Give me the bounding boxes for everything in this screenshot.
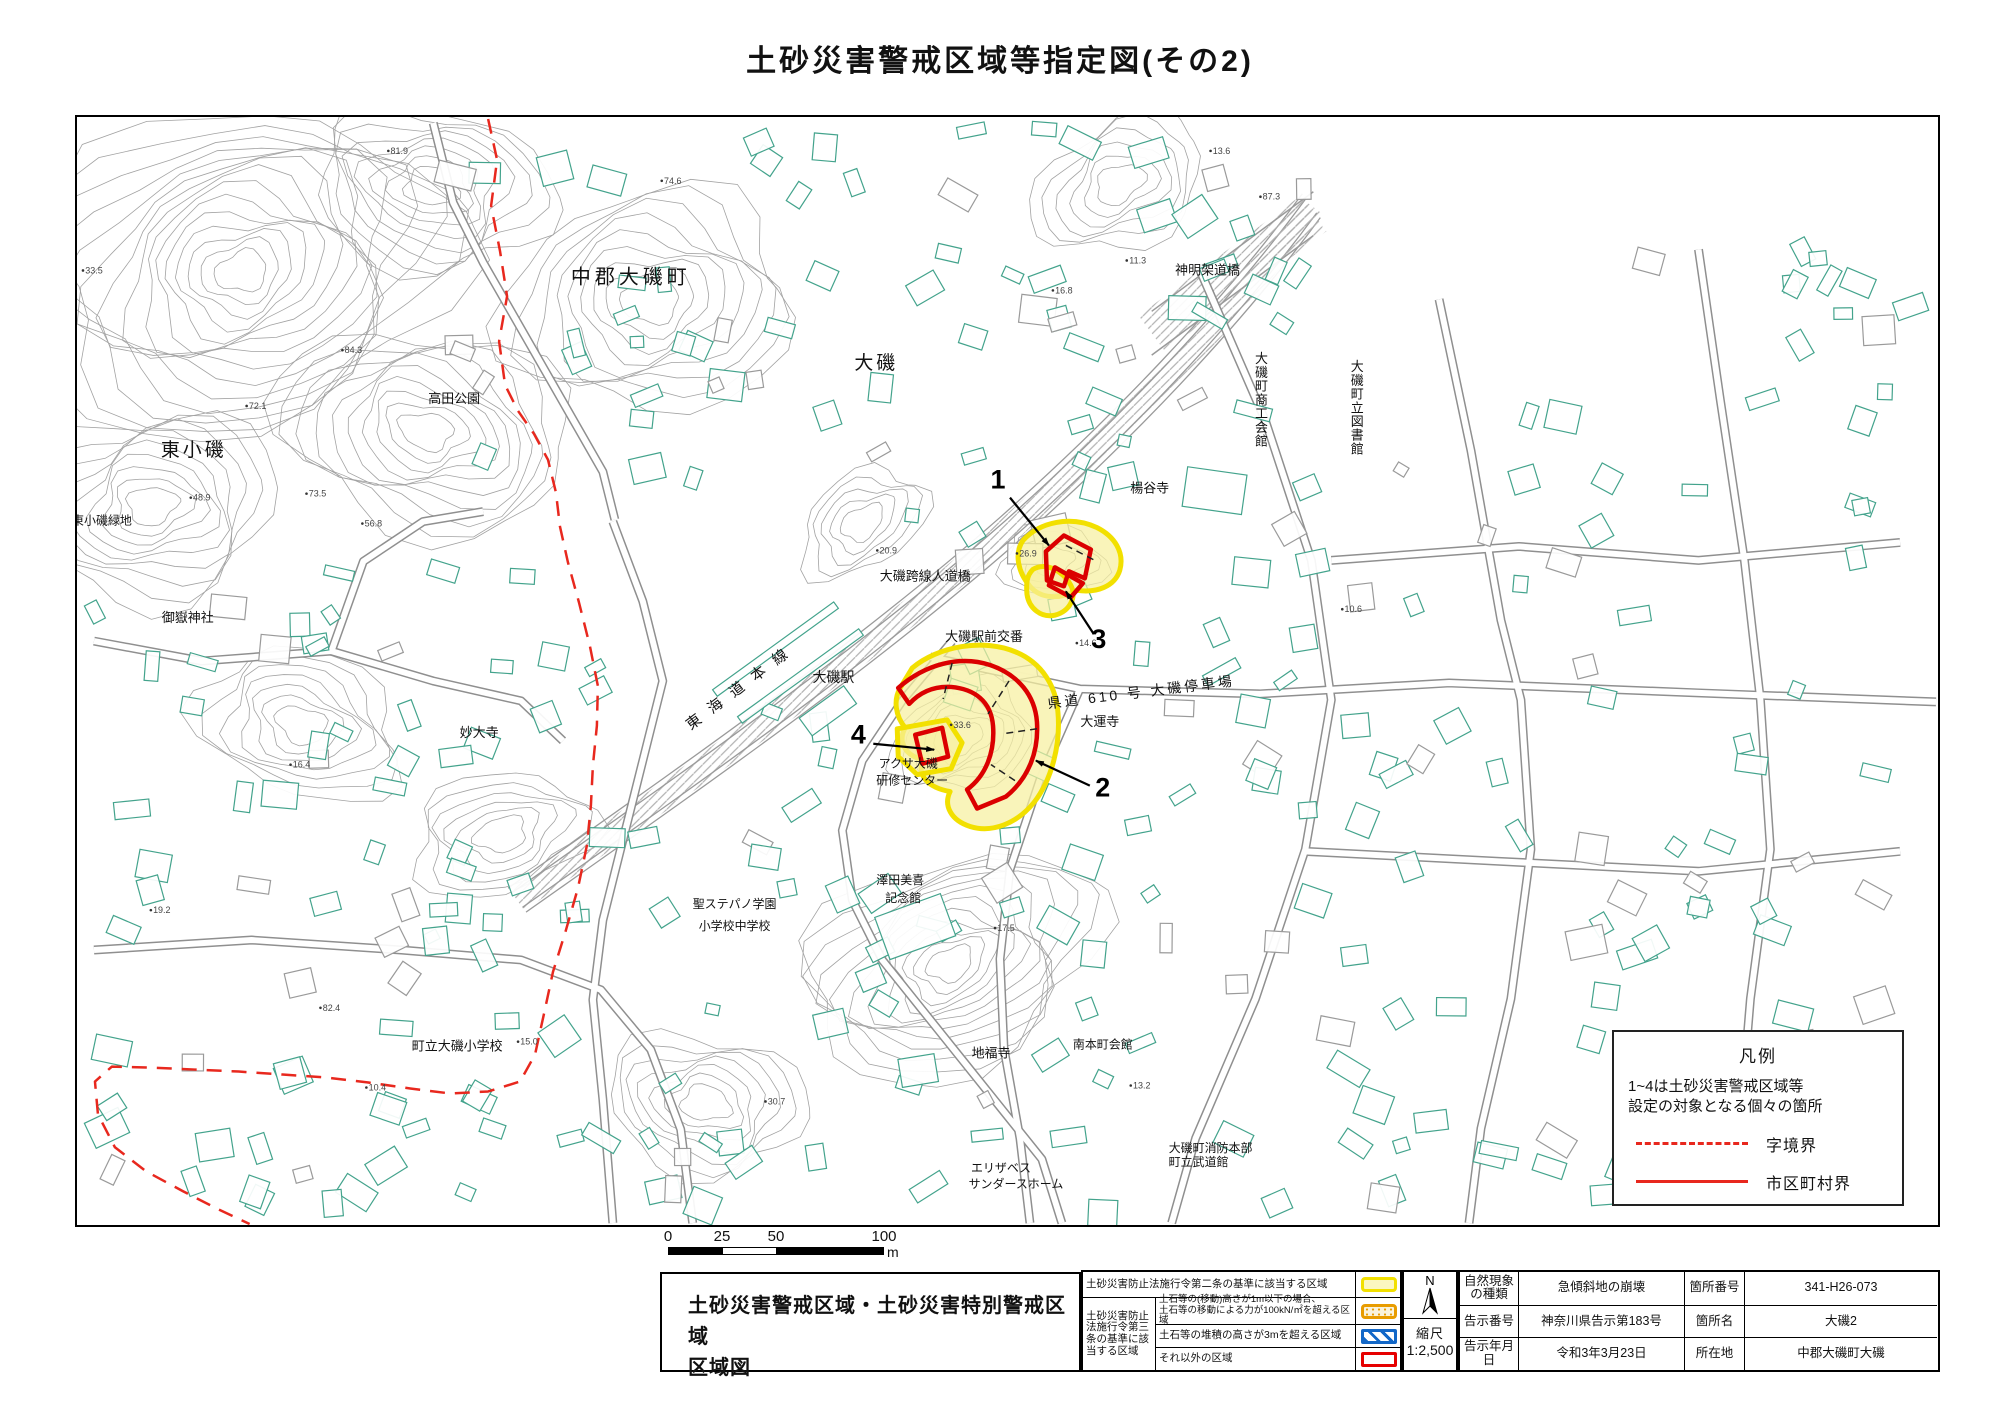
page-title: 土砂災害警戒区域等指定図(その2): [0, 36, 2000, 80]
map-place-label: 大磯駅: [812, 669, 854, 685]
zone-number: 2: [1095, 773, 1110, 803]
map-place-label: 東小磯緑地: [77, 513, 132, 528]
svg-text:16.8: 16.8: [1055, 285, 1072, 295]
map-place-label: 澤田美喜: [876, 873, 924, 887]
svg-text:33.5: 33.5: [85, 265, 102, 275]
map-place-label: 妙大寺: [460, 725, 499, 740]
svg-text:87.3: 87.3: [1263, 192, 1280, 202]
scale-bar: 0 25 50 100 m: [665, 1228, 915, 1262]
map-place-label: 南本町会館: [1073, 1037, 1133, 1052]
north-arrow-icon: N: [1404, 1272, 1456, 1319]
map-place-label: 大磯駅前交番: [945, 629, 1023, 644]
map-place-label: 神明架道橋: [1175, 262, 1240, 277]
map-place-label: 大磯町商工会館: [1255, 351, 1268, 448]
svg-text:72.1: 72.1: [249, 401, 266, 411]
svg-text:15.0: 15.0: [520, 1037, 537, 1047]
svg-text:84.3: 84.3: [345, 345, 362, 355]
map-legend-box: 凡例 1~4は土砂災害警戒区域等 設定の対象となる個々の箇所 字境界 市区町村界: [1612, 1030, 1904, 1206]
svg-text:73.5: 73.5: [309, 489, 326, 499]
orange-dotted-swatch: [1361, 1304, 1397, 1319]
map-place-label: 大磯町消防本部: [1169, 1140, 1253, 1155]
svg-text:13.2: 13.2: [1133, 1080, 1150, 1090]
sheet-title-block: 土砂災害警戒区域・土砂災害特別警戒区域 区域図: [660, 1272, 1081, 1372]
solid-red-line-sample: [1636, 1180, 1748, 1183]
map-place-label: エリザベス: [971, 1161, 1031, 1175]
map-place-label: 大磯町立図書館: [1351, 359, 1364, 456]
zone-number: 3: [1091, 624, 1106, 654]
map-place-label: 御嶽神社: [162, 610, 214, 625]
blue-hatched-swatch: [1361, 1329, 1397, 1344]
svg-text:19.2: 19.2: [153, 905, 170, 915]
zone-legend-table: 土砂災害防止法施行令第二条の基準に該当する区域 土砂災害防止法施行令第三条の基準…: [1081, 1270, 1402, 1372]
legend-dashed-row: 字境界: [1636, 1132, 1902, 1156]
svg-text:N: N: [1425, 1273, 1434, 1288]
dashed-red-line-sample: [1636, 1142, 1748, 1145]
map-place-label: 大磯跨線人道橋: [880, 568, 971, 583]
svg-text:20.9: 20.9: [880, 545, 897, 555]
map-place-label: 記念館: [885, 890, 921, 905]
map-place-label: 東小磯: [161, 439, 227, 461]
map-place-label: 中郡大磯町: [571, 265, 691, 288]
map-place-label: 大運寺: [1080, 714, 1119, 729]
svg-text:13.6: 13.6: [1213, 146, 1230, 156]
map-place-label: 町立大磯小学校: [412, 1039, 503, 1054]
legend-title: 凡例: [1614, 1042, 1902, 1067]
svg-text:56.8: 56.8: [365, 519, 382, 529]
red-outline-swatch: [1361, 1352, 1397, 1367]
zone-number: 1: [991, 465, 1006, 495]
svg-text:48.9: 48.9: [193, 493, 210, 503]
svg-text:11.3: 11.3: [1129, 255, 1146, 265]
svg-text:10.6: 10.6: [1345, 604, 1362, 614]
map-place-label: アクサ大磯: [879, 757, 938, 771]
compass-scale-cell: N 縮尺 1:2,500: [1402, 1270, 1458, 1372]
scale-bar-segments: [668, 1247, 884, 1255]
yellow-zone-swatch: [1361, 1277, 1397, 1292]
hazard-map-sheet: { "page": { "title": "土砂災害警戒区域等指定図(その2)"…: [0, 0, 2000, 1414]
map-place-label: 研修センター: [876, 773, 948, 788]
map-place-label: 楊谷寺: [1130, 481, 1169, 496]
svg-text:81.9: 81.9: [391, 146, 408, 156]
legend-solid-row: 市区町村界: [1636, 1170, 1902, 1194]
svg-text:74.6: 74.6: [664, 176, 681, 186]
svg-text:17.5: 17.5: [997, 923, 1014, 933]
svg-text:33.6: 33.6: [953, 720, 970, 730]
notice-info-table: 自然現象の種類 急傾斜地の崩壊 箇所番号 341-H26-073 告示番号 神奈…: [1458, 1270, 1940, 1372]
map-place-label: 大磯: [854, 352, 898, 374]
svg-text:16.4: 16.4: [293, 760, 310, 770]
map-place-label: 高田公園: [428, 391, 480, 406]
map-place-label: 小学校中学校: [699, 918, 771, 933]
map-place-label: サンダースホーム: [969, 1176, 1064, 1191]
svg-text:82.4: 82.4: [323, 1003, 340, 1013]
svg-text:30.7: 30.7: [768, 1096, 785, 1106]
map-place-label: 地福寺: [972, 1046, 1011, 1061]
map-place-label: 町立武道館: [1169, 1154, 1229, 1169]
svg-text:26.9: 26.9: [1019, 548, 1036, 558]
zone-number: 4: [851, 720, 866, 750]
svg-text:10.4: 10.4: [369, 1082, 386, 1092]
map-place-label: 聖ステパノ学園: [693, 896, 777, 911]
legend-note: 1~4は土砂災害警戒区域等 設定の対象となる個々の箇所: [1628, 1077, 1902, 1118]
